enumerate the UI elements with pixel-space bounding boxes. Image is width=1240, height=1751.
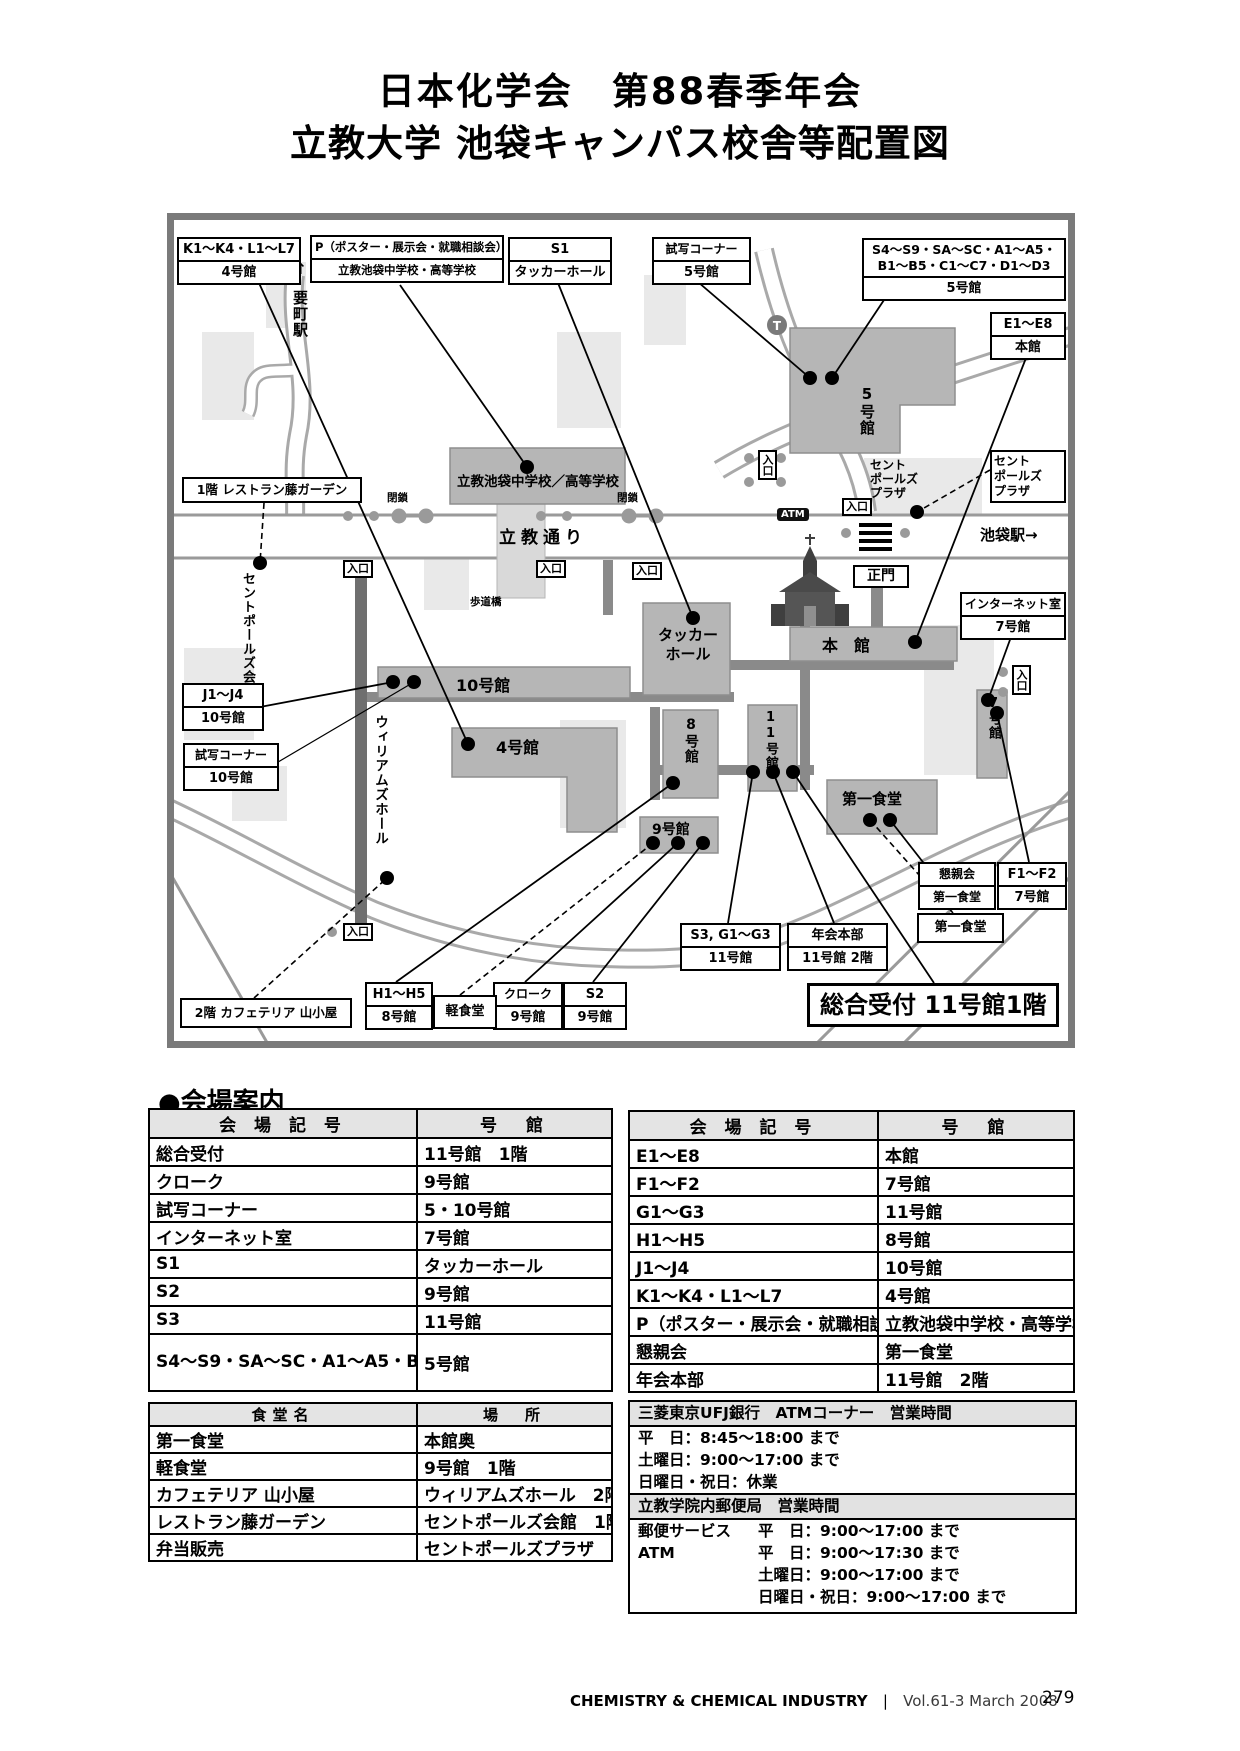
restaurant-label: 1階 レストラン藤ガーデン xyxy=(182,477,362,503)
bank-hours-header: 三菱東京UFJ銀行 ATMコーナー 営業時間 xyxy=(630,1402,1075,1427)
closed-gate-label: 閉鎖 xyxy=(617,492,638,504)
page: 日本化学会 第88春季年会 立教大学 池袋キャンパス校舎等配置図 xyxy=(0,0,1240,1751)
pedestrian-bridge-label: 歩道橋 xyxy=(470,596,502,608)
callout-st-pauls-plaza: セント ポールズ プラザ xyxy=(990,450,1066,503)
callout-building: 7号館 xyxy=(999,885,1065,908)
callout-building: 第一食堂 xyxy=(920,885,994,908)
light-meal-label: 軽食堂 xyxy=(433,995,497,1029)
callout-code: H1～H5 xyxy=(367,984,431,1005)
callout-f: F1～F2 7号館 xyxy=(997,862,1067,910)
table-row: 第一食堂本館奥 xyxy=(149,1426,612,1453)
table-row: 試写コーナー5・10号館 xyxy=(149,1194,612,1222)
callout-code: 試写コーナー xyxy=(185,745,277,766)
callout-building: タッカーホール xyxy=(510,260,610,283)
callout-building: 7号館 xyxy=(962,615,1064,638)
col-header-building: 号 館 xyxy=(878,1111,1074,1140)
bank-hours-line: 日曜日・祝日：休業 xyxy=(630,1471,1075,1493)
callout-code: J1～J4 xyxy=(184,685,262,706)
table-row: 軽食堂9号館 1階 xyxy=(149,1453,612,1480)
callout-code: S2 xyxy=(565,984,625,1005)
volume-info: Vol.61-3 March 2008 xyxy=(903,1692,1058,1710)
svg-text:T: T xyxy=(773,319,782,333)
callout-h: H1～H5 8号館 xyxy=(365,982,433,1030)
callout-s3-g: S3, G1～G3 11号館 xyxy=(680,923,781,971)
table-row: J1～J410号館 xyxy=(629,1252,1074,1280)
table-row: インターネット室7号館 xyxy=(149,1222,612,1250)
callout-building: 5号館 xyxy=(654,260,749,283)
callout-shisha-5: 試写コーナー 5号館 xyxy=(652,237,751,285)
title-line1: 日本化学会 第88春季年会 xyxy=(0,66,1240,118)
callout-building: 本館 xyxy=(992,335,1064,358)
atm-badge: ATM xyxy=(777,508,809,521)
building-5-label: 5号館 xyxy=(857,385,878,436)
callout-k-l: K1～K4・L1～L7 4号館 xyxy=(177,237,301,285)
callout-building: 10号館 xyxy=(184,706,262,729)
col-header-place: 場 所 xyxy=(417,1403,612,1426)
table-row: 総合受付11号館 1階 xyxy=(149,1138,612,1166)
footer: CHEMISTRY & CHEMICAL INDUSTRY | Vol.61-3… xyxy=(570,1692,1058,1710)
callout-building: 11号館 xyxy=(682,946,779,969)
entrance-label: 入口 xyxy=(343,560,373,578)
cafeteria-label: 2階 カフェテリア 山小屋 xyxy=(180,998,352,1028)
table-row: S4～S9・SA～SC・A1～A5・B1～B5・C1～C7・D1～D35号館 xyxy=(149,1334,612,1391)
col-header-building: 号 館 xyxy=(417,1109,612,1138)
st-pauls-plaza-map-label: セント ポールズ プラザ xyxy=(870,458,918,500)
table-row: K1～K4・L1～L74号館 xyxy=(629,1280,1074,1308)
callout-j: J1～J4 10号館 xyxy=(182,683,264,731)
building-7-label: 7号館 xyxy=(984,696,1003,740)
main-gate-label: 正門 xyxy=(853,565,909,588)
callout-code: S4～S9・SA～SC・A1～A5・B1～B5・C1～C7・D1～D3 xyxy=(864,240,1064,276)
bank-hours-line: 土曜日：9:00～17:00 まで xyxy=(630,1449,1075,1471)
table-row: クローク9号館 xyxy=(149,1166,612,1194)
table-row: カフェテリア 山小屋ウィリアムズホール 2階 xyxy=(149,1480,612,1507)
table-row: S311号館 xyxy=(149,1306,612,1334)
footer-separator: | xyxy=(873,1692,898,1710)
post-hours-line: 郵便サービス平 日：9:00～17:00 まで xyxy=(630,1520,1075,1542)
callout-building: 8号館 xyxy=(367,1005,431,1028)
callout-code: 懇親会 xyxy=(920,864,994,885)
williams-hall-label: ウィリアムズホール xyxy=(370,715,390,873)
col-header-code: 会 場 記 号 xyxy=(149,1109,417,1138)
daiichi-shokudo-label: 第一食堂 xyxy=(917,913,1004,943)
table-row: E1～E8本館 xyxy=(629,1140,1074,1168)
post-hours-line: 日曜日・祝日：9:00～17:00 まで xyxy=(630,1586,1075,1612)
table-row: G1～G311号館 xyxy=(629,1196,1074,1224)
callout-e: E1～E8 本館 xyxy=(990,312,1066,360)
hours-box: 三菱東京UFJ銀行 ATMコーナー 営業時間 平 日：8:45～18:00 まで… xyxy=(628,1400,1077,1614)
bank-hours-line: 平 日：8:45～18:00 まで xyxy=(630,1427,1075,1449)
building-10-label: 10号館 xyxy=(456,672,510,696)
callout-code: S1 xyxy=(510,239,610,260)
callout-building: 立教池袋中学校・高等学校 xyxy=(312,258,502,281)
entrance-label: 入口 xyxy=(842,498,872,516)
entrance-label: 入口 xyxy=(632,562,662,580)
title-line2: 立教大学 池袋キャンパス校舎等配置図 xyxy=(0,118,1240,170)
table-row: S1タッカーホール xyxy=(149,1250,612,1278)
venue-table-left: 会 場 記 号 号 館 総合受付11号館 1階 クローク9号館 試写コーナー5・… xyxy=(148,1108,613,1392)
callout-building: 9号館 xyxy=(565,1005,625,1028)
callout-code: 試写コーナー xyxy=(654,239,749,260)
callout-building: 5号館 xyxy=(864,276,1064,299)
post-office-header: 立教学院内郵便局 営業時間 xyxy=(630,1493,1075,1520)
entrance-label: 入口 xyxy=(758,450,777,480)
callout-code: インターネット室 xyxy=(962,594,1064,615)
page-number: 279 xyxy=(1042,1688,1074,1708)
ikebukuro-station-label: 池袋駅→ xyxy=(980,524,1038,545)
callout-code: P（ポスター・展示会・就職相談会） xyxy=(312,237,502,258)
callout-code: F1～F2 xyxy=(999,864,1065,885)
main-building-label: 本 館 xyxy=(822,632,870,656)
venue-table-right: 会 場 記 号 号 館 E1～E8本館 F1～F27号館 G1～G311号館 H… xyxy=(628,1110,1075,1393)
callout-code: 年会本部 xyxy=(789,925,886,946)
building-4-label: 4号館 xyxy=(496,734,539,758)
callout-honbu: 年会本部 11号館 2階 xyxy=(787,923,888,971)
table-row: レストラン藤ガーデンセントポールズ会館 1階 xyxy=(149,1507,612,1534)
table-row: H1～H58号館 xyxy=(629,1224,1074,1252)
callout-s4-d3: S4～S9・SA～SC・A1～A5・B1～B5・C1～C7・D1～D3 5号館 xyxy=(862,238,1066,301)
building-11-label: 11号館 xyxy=(763,710,778,770)
page-title: 日本化学会 第88春季年会 立教大学 池袋キャンパス校舎等配置図 xyxy=(0,66,1240,170)
reception-label: 総合受付 11号館1階 xyxy=(807,983,1059,1027)
callout-cloak: クローク 9号館 xyxy=(493,982,563,1030)
callout-internet: インターネット室 7号館 xyxy=(960,592,1066,640)
callout-building: 4号館 xyxy=(179,260,299,283)
entrance-label: 入口 xyxy=(343,923,373,941)
callout-code: K1～K4・L1～L7 xyxy=(179,239,299,260)
post-hours-line: ATM平 日：9:00～17:30 まで xyxy=(630,1542,1075,1564)
col-header-code: 会 場 記 号 xyxy=(629,1111,878,1140)
dining-table: 食堂名 場 所 第一食堂本館奥 軽食堂9号館 1階 カフェテリア 山小屋ウィリア… xyxy=(148,1402,613,1562)
table-row: P（ポスター・展示会・就職相談会）立教池袋中学校・高等学校 xyxy=(629,1308,1074,1336)
callout-building: 11号館 2階 xyxy=(789,946,886,969)
callout-shisha-10: 試写コーナー 10号館 xyxy=(183,743,279,791)
building-9-label: 9号館 xyxy=(652,819,690,839)
callout-building: 10号館 xyxy=(185,766,277,789)
table-row: 懇親会第一食堂 xyxy=(629,1336,1074,1364)
callout-p: P（ポスター・展示会・就職相談会） 立教池袋中学校・高等学校 xyxy=(310,235,504,283)
callout-code: クローク xyxy=(495,984,561,1005)
table-row: S29号館 xyxy=(149,1278,612,1306)
entrance-label: 入口 xyxy=(1012,665,1031,695)
col-header-dining: 食堂名 xyxy=(149,1403,417,1426)
tucker-hall-label: タッカー ホール xyxy=(646,626,730,664)
callout-code: E1～E8 xyxy=(992,314,1064,335)
journal-name: CHEMISTRY & CHEMICAL INDUSTRY xyxy=(570,1692,868,1710)
school-label: 立教池袋中学校／高等学校 xyxy=(453,470,623,490)
table-row: F1～F27号館 xyxy=(629,1168,1074,1196)
table-row: 弁当販売セントポールズプラザ xyxy=(149,1534,612,1561)
table-row: 年会本部11号館 2階 xyxy=(629,1364,1074,1392)
callout-building: 9号館 xyxy=(495,1005,561,1028)
closed-gate-label: 閉鎖 xyxy=(387,492,408,504)
building-8-label: 8号館 xyxy=(681,717,701,764)
callout-s1: S1 タッカーホール xyxy=(508,237,612,285)
callout-s2: S2 9号館 xyxy=(563,982,627,1030)
campus-map: T xyxy=(167,213,1075,1048)
post-hours-line: 土曜日：9:00～17:00 まで xyxy=(630,1564,1075,1586)
entrance-label: 入口 xyxy=(536,560,566,578)
daiichi-dining-label: 第一食堂 xyxy=(842,788,902,809)
callout-code: S3, G1～G3 xyxy=(682,925,779,946)
rikkyo-dori-label: 立教通り xyxy=(499,523,587,548)
callout-konshinkai: 懇親会 第一食堂 xyxy=(918,862,996,910)
